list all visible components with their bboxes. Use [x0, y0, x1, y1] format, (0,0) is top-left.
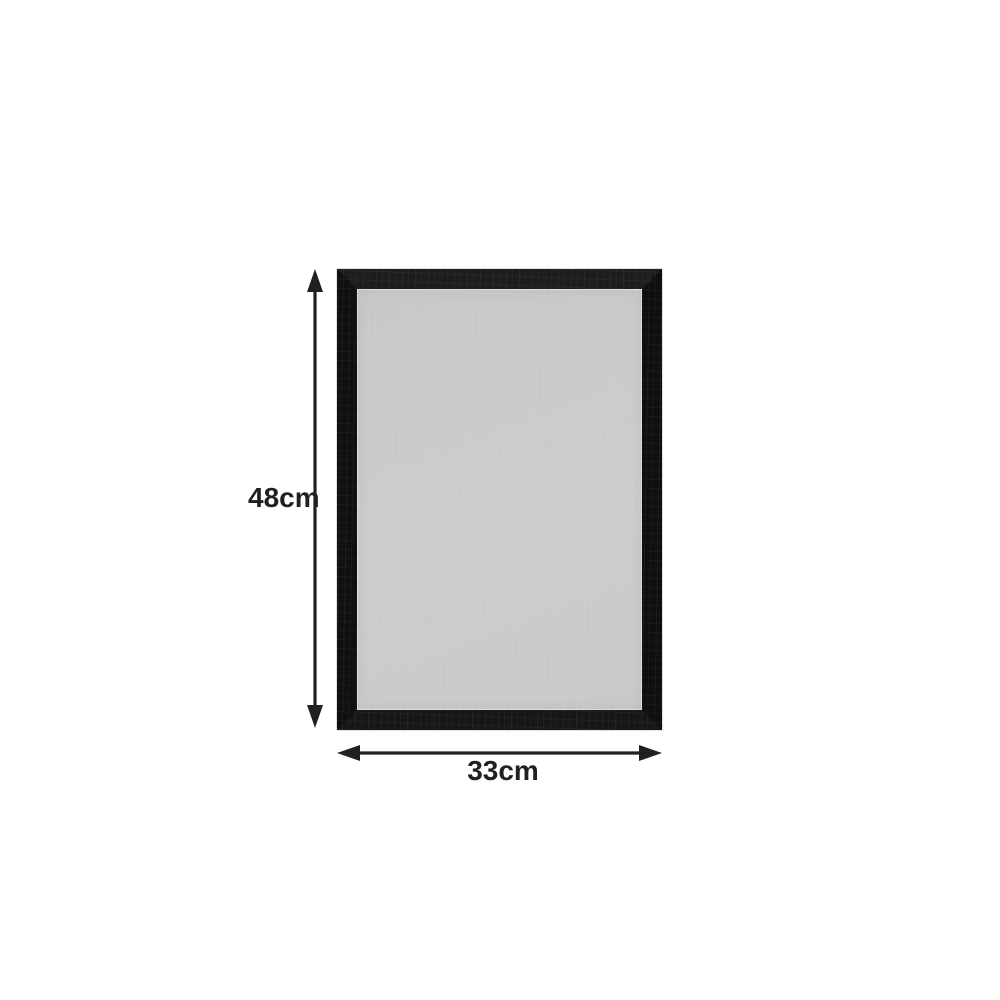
- height-dimension-label: 48cm: [248, 483, 314, 513]
- width-dimension-label: 33cm: [453, 756, 553, 786]
- frame-inner-board: [357, 289, 642, 710]
- product-dimension-diagram: 48cm 33cm: [0, 0, 1000, 1000]
- picture-frame: [337, 269, 662, 730]
